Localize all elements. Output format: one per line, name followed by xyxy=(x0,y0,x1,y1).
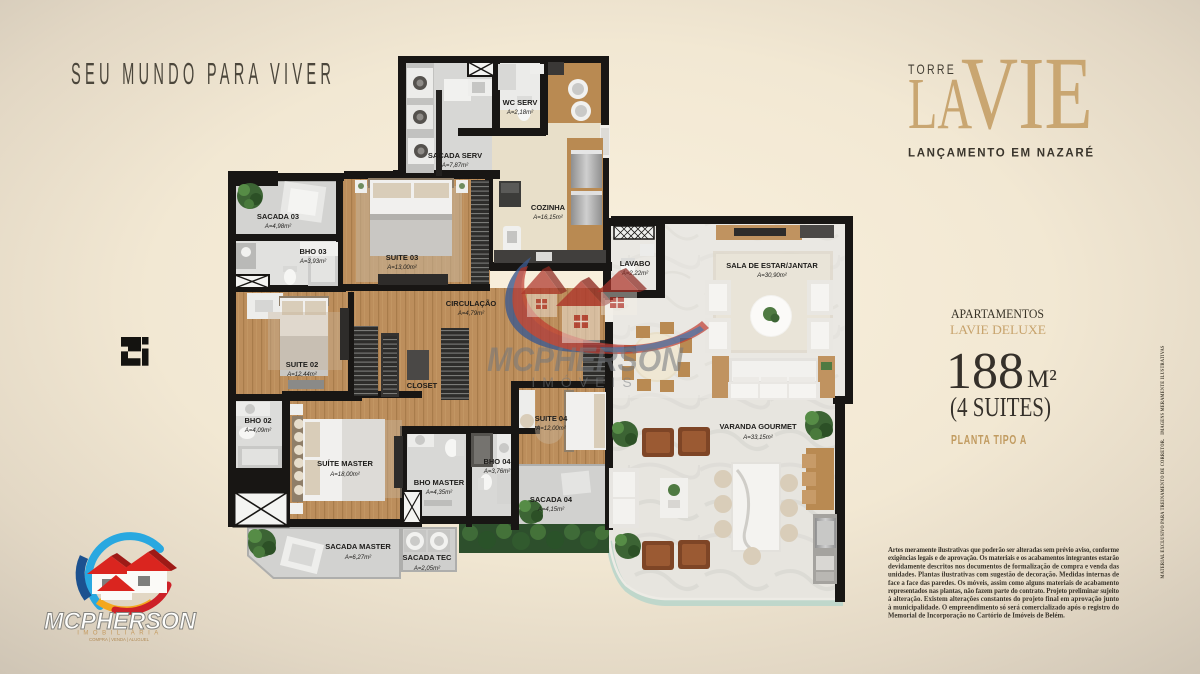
svg-text:SUITE 02: SUITE 02 xyxy=(286,360,319,369)
svg-text:A=2,05m²: A=2,05m² xyxy=(413,566,441,572)
svg-text:representados nas plantas, não: representados nas plantas, não fazem par… xyxy=(888,588,1120,595)
svg-text:A=18,00m²: A=18,00m² xyxy=(329,472,361,478)
svg-text:SACADA 03: SACADA 03 xyxy=(257,212,299,221)
svg-text:A=6,27m²: A=6,27m² xyxy=(344,555,372,561)
svg-text:A=4,79m²: A=4,79m² xyxy=(457,311,485,317)
svg-text:APARTAMENTOS: APARTAMENTOS xyxy=(951,307,1044,321)
svg-text:SALA DE ESTAR/JANTAR: SALA DE ESTAR/JANTAR xyxy=(726,261,818,270)
svg-text:CLOSET: CLOSET xyxy=(407,381,438,390)
svg-text:A=16,15m²: A=16,15m² xyxy=(532,215,564,221)
svg-text:VARANDA GOURMET: VARANDA GOURMET xyxy=(719,422,796,431)
svg-text:MATERIAL EXCLUSIVO PARA TREINA: MATERIAL EXCLUSIVO PARA TREINAMENTO DE C… xyxy=(1160,346,1166,579)
svg-text:A=4,35m²: A=4,35m² xyxy=(425,490,453,496)
svg-text:SEU MUNDO PARA VIVER: SEU MUNDO PARA VIVER xyxy=(71,58,335,92)
svg-text:exigências legais e de aprovaç: exigências legais e de aprovação. Os mat… xyxy=(888,555,1120,562)
svg-text:Artes meramente ilustrativas q: Artes meramente ilustrativas que poderão… xyxy=(888,547,1119,554)
svg-text:A=3,76m²: A=3,76m² xyxy=(483,469,511,475)
svg-text:CIRCULAÇÃO: CIRCULAÇÃO xyxy=(446,299,497,308)
svg-text:A=30,90m²: A=30,90m² xyxy=(756,273,788,279)
svg-text:A=13,00m²: A=13,00m² xyxy=(386,265,418,271)
svg-text:A=12,44m²: A=12,44m² xyxy=(286,372,318,378)
svg-text:LANÇAMENTO EM NAZARÉ: LANÇAMENTO EM NAZARÉ xyxy=(908,147,1097,160)
svg-text:PLANTA TIPO A: PLANTA TIPO A xyxy=(951,433,1027,447)
svg-text:BHO 04: BHO 04 xyxy=(483,457,511,466)
svg-text:LAVIE DELUXE: LAVIE DELUXE xyxy=(950,323,1046,337)
svg-text:A=3,93m²: A=3,93m² xyxy=(299,259,327,265)
svg-text:LAVABO: LAVABO xyxy=(620,259,651,268)
svg-text:SUITE 03: SUITE 03 xyxy=(386,253,419,262)
svg-text:Memorial de Incorporação no Ca: Memorial de Incorporação no Cartório de … xyxy=(888,613,1065,620)
svg-text:SACADA TEC: SACADA TEC xyxy=(403,553,452,562)
svg-text:A=4,15m²: A=4,15m² xyxy=(537,507,565,513)
svg-text:A=33,15m²: A=33,15m² xyxy=(742,435,774,441)
svg-text:A=12,00m²: A=12,00m² xyxy=(535,426,567,432)
svg-text:COZINHA: COZINHA xyxy=(531,203,566,212)
svg-text:BHO 02: BHO 02 xyxy=(244,416,271,425)
svg-text:à municipalidade. O empreendim: à municipalidade. O empreendimento só se… xyxy=(888,604,1120,611)
svg-text:COMPRA | VENDA | ALUGUEL: COMPRA | VENDA | ALUGUEL xyxy=(89,637,149,642)
svg-text:IMOBILIÁRIA: IMOBILIÁRIA xyxy=(77,630,163,637)
svg-text:SACADA SERV: SACADA SERV xyxy=(428,151,482,160)
svg-text:IMÓVEIS: IMÓVEIS xyxy=(531,374,638,390)
svg-text:à alteração. Existem alteraçõe: à alteração. Existem alterações constant… xyxy=(888,596,1120,603)
svg-text:devidamente descritos nos docu: devidamente descritos nos documentos de … xyxy=(888,563,1119,570)
svg-text:SUITE 04: SUITE 04 xyxy=(535,414,568,423)
svg-text:SACADA MASTER: SACADA MASTER xyxy=(325,542,391,551)
svg-text:BHO MASTER: BHO MASTER xyxy=(414,478,465,487)
svg-text:VIE: VIE xyxy=(961,36,1093,151)
svg-text:BHO 03: BHO 03 xyxy=(299,247,326,256)
svg-text:SUÍTE MASTER: SUÍTE MASTER xyxy=(317,459,373,468)
svg-text:WC SERV: WC SERV xyxy=(503,98,538,107)
svg-text:SACADA 04: SACADA 04 xyxy=(530,495,573,504)
svg-text:A=2,18m²: A=2,18m² xyxy=(506,110,534,116)
svg-text:(4 SUITES): (4 SUITES) xyxy=(950,392,1051,422)
svg-text:A=4,98m²: A=4,98m² xyxy=(264,224,292,230)
svg-text:face a face das paredes. Os mó: face a face das paredes. Os móveis, assi… xyxy=(888,580,1120,587)
svg-text:unidades. Plantas ilustrativas: unidades. Plantas ilustrativas com suges… xyxy=(888,572,1119,579)
svg-text:A=4,09m²: A=4,09m² xyxy=(244,428,272,434)
svg-text:A=7,87m²: A=7,87m² xyxy=(441,163,469,169)
